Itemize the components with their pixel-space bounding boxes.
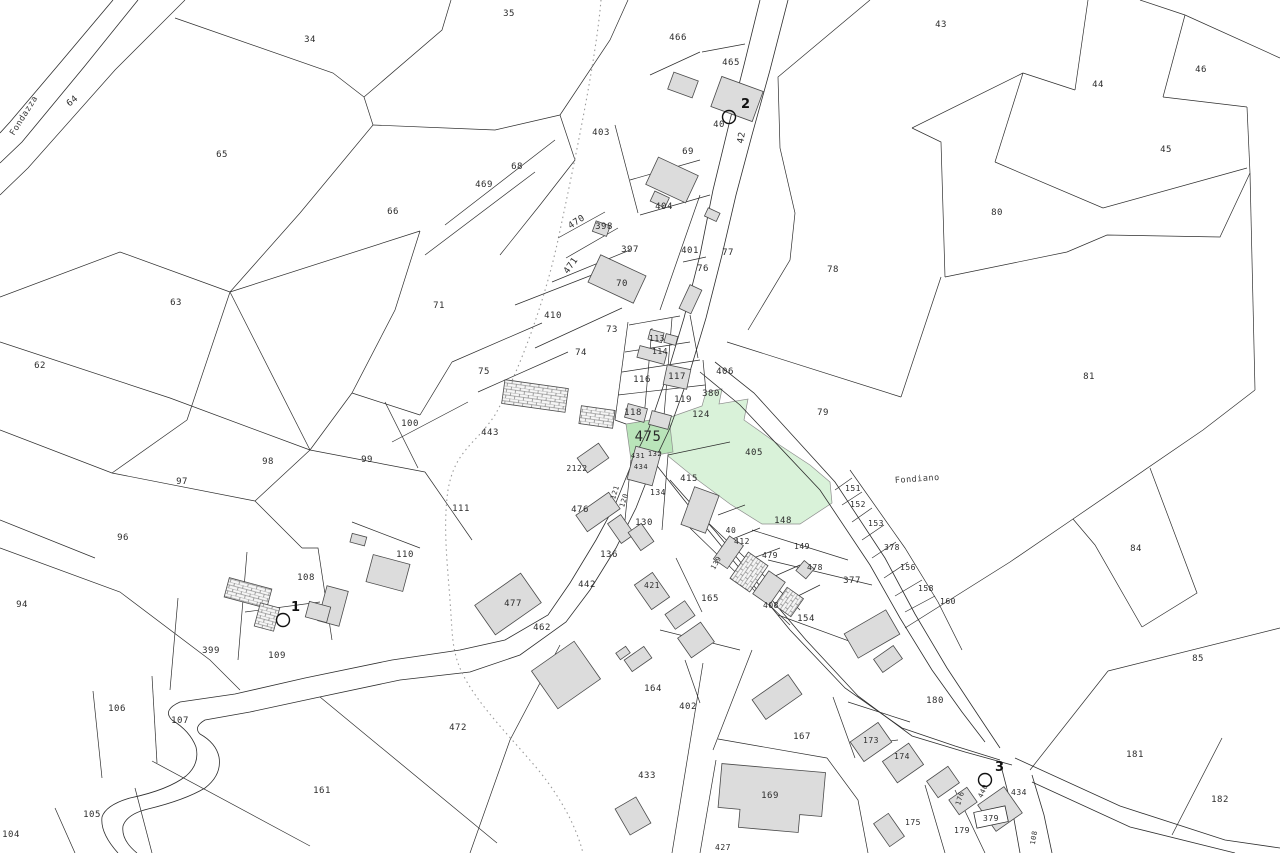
cadastral-map: 3435466465404240369434644456465684694046… — [0, 0, 1280, 853]
parcel-label-76: 76 — [697, 264, 709, 274]
parcel-label-470: 470 — [567, 213, 587, 231]
parcel-label-405: 405 — [745, 448, 763, 458]
parcel-label-79: 79 — [817, 408, 829, 418]
parcel-label-476: 476 — [571, 505, 589, 515]
parcel-label-181: 181 — [1126, 750, 1144, 760]
building — [532, 641, 601, 709]
building-hatched — [254, 603, 280, 631]
parcel-label-165: 165 — [701, 594, 719, 604]
parcel-label-479: 479 — [762, 551, 778, 560]
parcel-label-427: 427 — [715, 843, 731, 852]
parcel-label-164: 164 — [644, 684, 662, 694]
parcel-label-134: 134 — [650, 488, 666, 497]
buildings — [224, 72, 1022, 847]
parcel-label-421: 421 — [644, 581, 660, 590]
parcel-label-73: 73 — [606, 325, 618, 335]
parcel-label-97: 97 — [176, 477, 188, 487]
parcel-label-109: 109 — [268, 651, 286, 661]
building-hatched — [502, 380, 569, 413]
building — [752, 675, 802, 720]
parcel-label-478: 478 — [807, 563, 823, 572]
parcel-label-77: 77 — [722, 248, 734, 258]
parcel-label-136: 136 — [600, 550, 618, 560]
parcel-label-68: 68 — [511, 162, 523, 172]
parcel-label-151: 151 — [845, 484, 861, 493]
parcel-labels: 3435466465404240369434644456465684694046… — [2, 9, 1229, 852]
parcel-label-153: 153 — [868, 519, 884, 528]
parcel-label-78: 78 — [827, 265, 839, 275]
parcel-label-175: 175 — [905, 818, 921, 827]
parcel-label-466: 466 — [669, 33, 687, 43]
parcel-label-167: 167 — [793, 732, 811, 742]
parcel-label-96: 96 — [117, 533, 129, 543]
parcel-label-174: 174 — [894, 752, 910, 761]
survey-point-circle-1 — [277, 614, 290, 627]
parcel-label-465: 465 — [722, 58, 740, 68]
parcel-label-412: 412 — [734, 537, 750, 546]
parcel-label-443: 443 — [481, 428, 499, 438]
building — [681, 487, 719, 533]
building-hatched — [579, 406, 615, 429]
parcel-label-84: 84 — [1130, 544, 1142, 554]
parcel-label-81: 81 — [1083, 372, 1095, 382]
map-canvas: 3435466465404240369434644456465684694046… — [0, 0, 1280, 853]
survey-point-number-3: 3 — [995, 760, 1004, 775]
parcel-label-462: 462 — [533, 623, 551, 633]
building — [615, 797, 651, 835]
building — [665, 601, 695, 630]
parcel-label-94: 94 — [16, 600, 28, 610]
parcel-label-398: 398 — [595, 222, 613, 232]
parcel-label-106: 106 — [108, 704, 126, 714]
parcel-label-475: 475 — [635, 429, 662, 445]
building — [678, 622, 715, 658]
parcel-label-415: 415 — [680, 474, 698, 484]
parcel-label-377: 377 — [843, 576, 861, 586]
parcel-label-378: 378 — [884, 543, 900, 552]
parcel-label-169: 169 — [761, 791, 779, 801]
parcel-label-71: 71 — [433, 301, 445, 311]
parcel-label-43: 43 — [935, 20, 947, 30]
parcel-label-403: 403 — [592, 128, 610, 138]
building — [366, 555, 410, 592]
parcel-label-124: 124 — [692, 410, 710, 420]
parcel-label-397: 397 — [621, 245, 639, 255]
parcel-label-46: 46 — [1195, 65, 1207, 75]
parcel-label-98: 98 — [262, 457, 274, 467]
parcel-label-472: 472 — [449, 723, 467, 733]
building — [874, 813, 905, 846]
parcel-label-42: 42 — [736, 131, 748, 144]
parcel-label-433: 433 — [638, 771, 656, 781]
parcel-label-379: 379 — [983, 814, 999, 823]
parcel-label-74: 74 — [575, 348, 587, 358]
parcel-label-156: 156 — [900, 563, 916, 572]
parcel-label-434: 434 — [1011, 788, 1027, 797]
parcel-label-45: 45 — [1160, 145, 1172, 155]
parcel-label-434: 434 — [634, 463, 648, 471]
parcel-label-35: 35 — [503, 9, 515, 19]
building — [679, 285, 702, 314]
parcel-label-117: 117 — [668, 372, 686, 382]
parcel-label-380: 380 — [702, 389, 720, 399]
parcel-label-105: 105 — [83, 810, 101, 820]
building — [664, 334, 678, 346]
building — [874, 646, 903, 673]
parcel-label-152: 152 — [850, 500, 866, 509]
parcel-label-100: 100 — [401, 419, 419, 429]
parcel-label-110: 110 — [396, 550, 414, 560]
parcel-label-469: 469 — [475, 180, 493, 190]
parcel-label-99: 99 — [361, 455, 373, 465]
parcel-label-477: 477 — [504, 599, 522, 609]
survey-point-number-2: 2 — [741, 97, 750, 112]
parcel-label-182: 182 — [1211, 795, 1229, 805]
parcel-label-108: 108 — [1029, 830, 1039, 845]
parcel-label-401: 401 — [681, 246, 699, 256]
parcel-label-116: 116 — [633, 375, 651, 385]
parcel-label-85: 85 — [1192, 654, 1204, 664]
parcel-label-149: 149 — [794, 542, 810, 551]
survey-point-number-1: 1 — [291, 600, 300, 615]
parcel-label-118: 118 — [624, 408, 642, 418]
parcel-label-154: 154 — [797, 614, 815, 624]
parcel-label-408: 408 — [763, 601, 779, 610]
parcel-label-160: 160 — [940, 597, 956, 606]
parcel-label-132: 132 — [648, 450, 662, 458]
building — [634, 572, 669, 609]
parcel-label-119: 119 — [674, 395, 692, 405]
footpath-dotted-trail — [446, 0, 601, 853]
parcel-label-62: 62 — [34, 361, 46, 371]
parcel-label-108: 108 — [297, 573, 315, 583]
parcel-label-107: 107 — [171, 716, 189, 726]
parcel-label-406: 406 — [716, 367, 734, 377]
parcel-label-34: 34 — [304, 35, 316, 45]
parcel-label-161: 161 — [313, 786, 331, 796]
parcel-label-410: 410 — [544, 311, 562, 321]
parcel-label-104: 104 — [2, 830, 20, 840]
parcel-label-40: 40 — [726, 526, 737, 535]
building — [350, 533, 367, 546]
parcel-label-399: 399 — [202, 646, 220, 656]
building — [927, 766, 960, 797]
parcel-label-179: 179 — [954, 826, 970, 835]
parcel-label-431: 431 — [631, 452, 645, 460]
street-name-fondazza: Fondazza — [8, 94, 40, 137]
parcel-label-80: 80 — [991, 208, 1003, 218]
parcel-label-66: 66 — [387, 207, 399, 217]
parcel-label-173: 173 — [863, 736, 879, 745]
parcel-label-113: 113 — [649, 334, 665, 343]
parcel-label-120: 120 — [618, 492, 630, 508]
parcel-label-158: 158 — [918, 584, 934, 593]
parcel-label-69: 69 — [682, 147, 694, 157]
parcel-label-442: 442 — [578, 580, 596, 590]
parcel-label-180: 180 — [926, 696, 944, 706]
parcel-label-44: 44 — [1092, 80, 1104, 90]
parcel-label-65: 65 — [216, 150, 228, 160]
building — [668, 72, 699, 98]
parcel-label-130: 130 — [635, 518, 653, 528]
parcel-label-121: 121 — [609, 484, 621, 500]
parcel-label-402: 402 — [679, 702, 697, 712]
parcel-label-111: 111 — [452, 504, 470, 514]
building — [711, 76, 763, 121]
parcel-label-70: 70 — [616, 279, 628, 289]
parcel-label-2122: 2122 — [566, 464, 587, 473]
parcel-label-64: 64 — [65, 94, 81, 109]
parcel-label-404: 404 — [655, 202, 673, 212]
parcel-label-75: 75 — [478, 367, 490, 377]
building — [882, 743, 923, 783]
street-name-fondiano: Fondiano — [895, 473, 941, 486]
parcel-label-63: 63 — [170, 298, 182, 308]
parcel-label-148: 148 — [774, 516, 792, 526]
parcel-label-471: 471 — [562, 256, 580, 276]
parcel-label-40: 40 — [713, 120, 725, 130]
parcel-label-114: 114 — [652, 347, 668, 356]
